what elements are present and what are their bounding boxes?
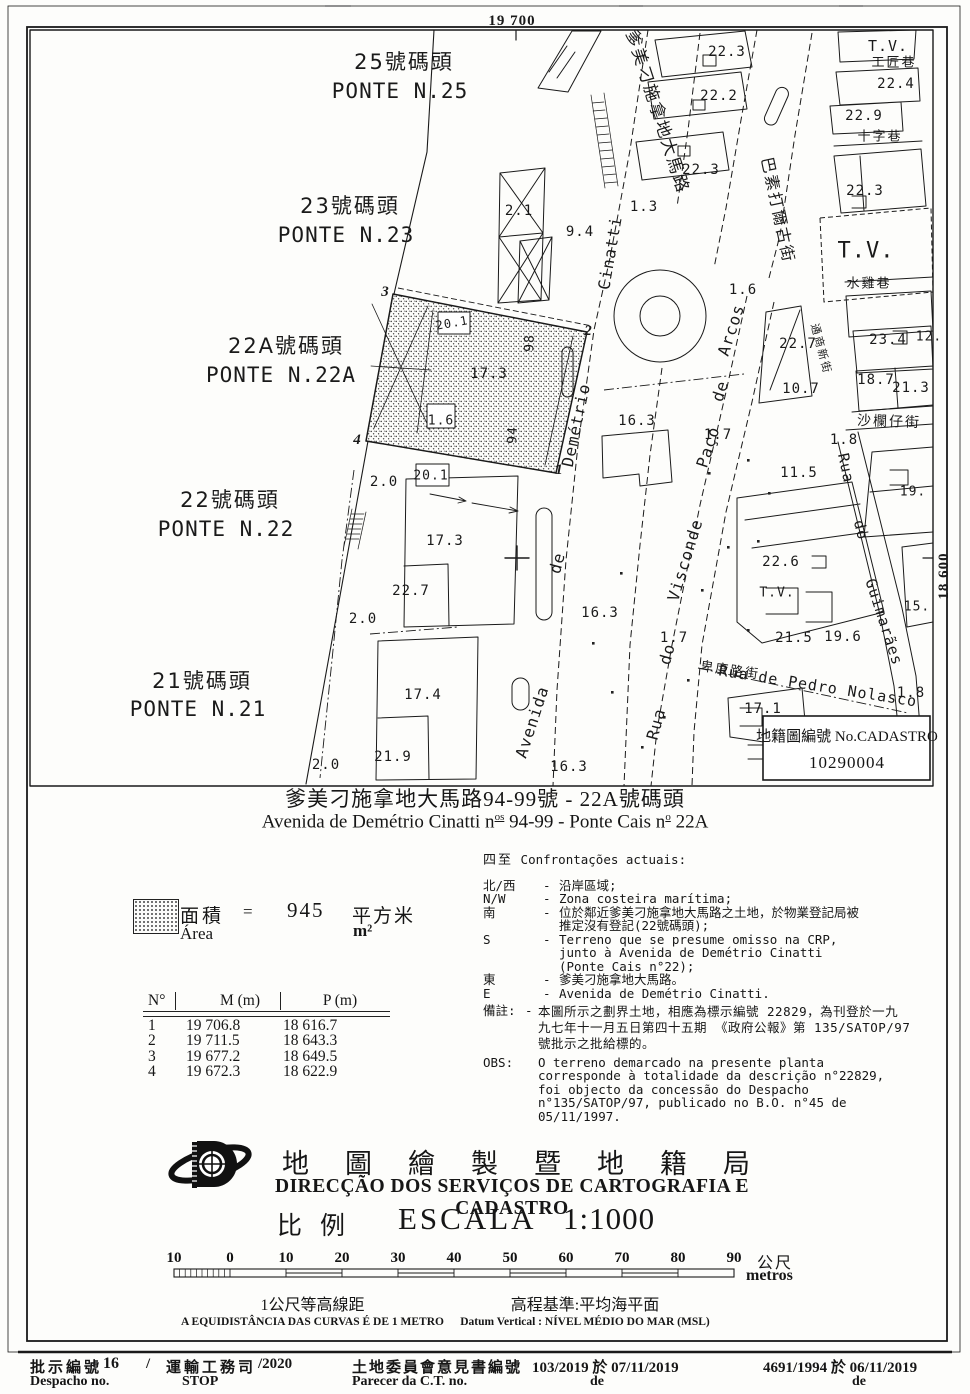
table-divider bbox=[280, 992, 281, 1010]
despacho-label-pt: Despacho no. bbox=[30, 1374, 109, 1390]
title-pt-part: 94-99 - Ponte Cais n bbox=[504, 811, 665, 832]
area-value: 945 bbox=[287, 898, 325, 923]
scale-tick-label: 10 bbox=[279, 1250, 294, 1266]
elevation-label: 1.3 bbox=[630, 199, 658, 215]
elevation-label: 1.6 bbox=[729, 282, 757, 298]
note-text: O terreno demarcado na presente planta c… bbox=[538, 1056, 923, 1124]
notes-block: 備註: - 本圖所示之劃界土地，相應為標示編號 22829，為刊登於一九 九七年… bbox=[483, 1004, 923, 1123]
street-label: de bbox=[545, 550, 569, 575]
cadastro-number: 10290004 bbox=[809, 753, 885, 772]
col-header: M (m) bbox=[200, 992, 280, 1010]
elevation-label: 19.6 bbox=[824, 629, 862, 645]
elevation-label: 15. bbox=[904, 600, 930, 615]
item-label: 東 bbox=[483, 973, 543, 987]
elevation-label: 16.3 bbox=[550, 759, 588, 775]
parecer-label-pt: Parecer da C.T. no. bbox=[352, 1374, 467, 1390]
elevation-label: 22.7 bbox=[779, 336, 817, 352]
scale-tick-label: 0 bbox=[226, 1250, 234, 1266]
elevation-label: 2.0 bbox=[349, 611, 377, 627]
title-pt-part: 22A bbox=[671, 811, 708, 832]
tv-label: T.V. bbox=[759, 586, 794, 601]
item-label: 南 bbox=[483, 906, 543, 933]
grid-coordinate-right: 18 600 bbox=[936, 552, 952, 599]
area-label-pt: Área bbox=[180, 924, 213, 944]
contour-note-zh: 1公尺等高線距 bbox=[160, 1291, 465, 1315]
item-dash: - bbox=[543, 892, 559, 906]
scale-tick-label: 30 bbox=[391, 1250, 406, 1266]
col-header: N° bbox=[148, 992, 165, 1010]
item-label: N/W bbox=[483, 892, 543, 906]
item-dash: - bbox=[543, 973, 559, 987]
street-label: 巴素打爾古街 bbox=[757, 155, 798, 265]
street-label: Rua bbox=[643, 706, 670, 742]
elevation-label: 20.1 bbox=[413, 469, 448, 484]
pier-label: PONTE N.22 bbox=[158, 517, 294, 541]
cadastro-box: 地籍圖編號 No.CADASTRO 10290004 bbox=[756, 716, 938, 780]
pier-label: 21號碼頭 bbox=[152, 669, 252, 693]
elevation-label: 22.3 bbox=[682, 162, 720, 178]
elevation-label: 22.4 bbox=[877, 76, 915, 92]
table-divider bbox=[175, 992, 176, 1010]
elevation-label: 1.6 bbox=[428, 414, 454, 429]
concessao-de: de bbox=[852, 1374, 866, 1390]
heading-pt: Confrontações actuais: bbox=[521, 852, 687, 867]
cell: 19 672.3 bbox=[186, 1063, 240, 1081]
coordinates-table: N° M (m) P (m) 119 706.818 616.7 219 711… bbox=[143, 992, 393, 1078]
parecer-value: 103/2019 於 07/11/2019 bbox=[532, 1356, 679, 1377]
despacho-number: 16 bbox=[103, 1355, 119, 1373]
datum-note-zh: 高程基準:平均海平面 bbox=[430, 1291, 740, 1315]
plan-title-zh: 爹美刁施拿地大馬路94-99號 - 22A號碼頭 bbox=[0, 783, 970, 813]
elevation-label: 17.1 bbox=[744, 701, 782, 717]
pier-label: 22A號碼頭 bbox=[228, 334, 344, 358]
street-label: Rua bbox=[834, 451, 858, 484]
item-text: Avenida de Demétrio Cinatti. bbox=[559, 987, 913, 1001]
street-label: de bbox=[708, 378, 733, 404]
elevation-label: 2.1 bbox=[505, 203, 533, 219]
despacho-slash: / bbox=[146, 1356, 150, 1373]
parecer-de: de bbox=[590, 1374, 604, 1390]
elevation-label: 22.2 bbox=[700, 88, 738, 104]
elevation-label: 22.7 bbox=[392, 583, 430, 599]
elevation-label: 16.3 bbox=[581, 605, 619, 621]
street-label: Visconde bbox=[663, 517, 706, 604]
item-text: 位於鄰近爹美刁施拿地大馬路之土地，於物業登記局被 推定沒有登記(22號碼頭); bbox=[559, 906, 913, 933]
scale-unit-pt: metros bbox=[746, 1267, 793, 1285]
item-dash: - bbox=[543, 933, 559, 974]
scale-tick-label: 80 bbox=[671, 1250, 686, 1266]
roundabout bbox=[614, 270, 706, 362]
area-legend-swatch bbox=[133, 899, 179, 934]
street-label: Cinatti bbox=[594, 215, 626, 292]
note-label: 備註: bbox=[483, 1004, 525, 1053]
coordinates-table-header: N° M (m) P (m) bbox=[143, 992, 393, 1009]
table-row: 219 711.518 643.3 bbox=[143, 1032, 393, 1047]
table-row: 119 706.818 616.7 bbox=[143, 1017, 393, 1032]
building-outlines bbox=[602, 430, 672, 486]
elevation-label: 18.7 bbox=[857, 372, 895, 388]
note-dash: - bbox=[525, 1004, 538, 1053]
tv-label: T.V. bbox=[868, 37, 908, 55]
grid-cross bbox=[505, 546, 529, 570]
elevation-label: 22.3 bbox=[708, 44, 746, 60]
street-label: 工匠巷 bbox=[871, 56, 916, 71]
building-outlines bbox=[737, 482, 884, 643]
elevation-label: 22.9 bbox=[845, 108, 883, 124]
note-dash bbox=[525, 1056, 538, 1124]
elevation-label: 21.9 bbox=[374, 749, 412, 765]
confrontations-items: 北/西-沿岸區域; N/W-Zona costeira marítima; 南-… bbox=[483, 879, 913, 1001]
street-label: Arcos bbox=[714, 302, 749, 358]
table-row: 319 677.218 649.5 bbox=[143, 1048, 393, 1063]
street-label: do bbox=[850, 518, 872, 542]
area-unit-pt: m² bbox=[353, 921, 372, 941]
scale-tick-label: 20 bbox=[335, 1250, 350, 1266]
elevation-label: 2.0 bbox=[370, 474, 398, 490]
grid-coordinate-top: 19 700 bbox=[488, 13, 535, 29]
street-label: 沙欄仔街 bbox=[857, 413, 922, 431]
title-pt-part: Avenida de Demétrio Cinatti n bbox=[262, 811, 495, 832]
elevation-label: 23.4 bbox=[869, 332, 907, 348]
note-text: 本圖所示之劃界土地，相應為標示編號 22829，為刊登於一九 九七年十一月五日第… bbox=[538, 1004, 923, 1053]
street-label: 水雞巷 bbox=[846, 277, 891, 292]
street-label: 十字巷 bbox=[857, 130, 902, 145]
boundary-point-number: 1 bbox=[555, 462, 563, 478]
item-label: S bbox=[483, 933, 543, 974]
confrontations-heading: 四至 Confrontações actuais: bbox=[483, 853, 913, 868]
tv-label: T.V. bbox=[838, 239, 895, 264]
note-label: OBS: bbox=[483, 1056, 525, 1124]
item-text: Terreno que se presume omisso na CRP, ju… bbox=[559, 933, 913, 974]
elevation-label: 17.3 bbox=[426, 533, 464, 549]
item-dash: - bbox=[543, 879, 559, 893]
table-row: 419 672.318 622.9 bbox=[143, 1063, 393, 1078]
cadastral-plan-page: 地籍圖編號 No.CADASTRO 10290004 19 70018 6002… bbox=[0, 0, 970, 1394]
scale-tick-label: 10 bbox=[167, 1250, 182, 1266]
item-dash: - bbox=[543, 987, 559, 1001]
datum-note-pt: Datum Vertical : NÍVEL MÉDIO DO MAR (MSL… bbox=[430, 1316, 740, 1328]
elevation-label: 17.3 bbox=[470, 366, 508, 382]
note-obs: OBS: O terreno demarcado na presente pla… bbox=[483, 1056, 923, 1124]
pier-label: 23號碼頭 bbox=[300, 194, 400, 218]
dept-abbr: STOP bbox=[182, 1374, 218, 1390]
elevation-label: 11.5 bbox=[780, 465, 818, 481]
note-zh: 備註: - 本圖所示之劃界土地，相應為標示編號 22829，為刊登於一九 九七年… bbox=[483, 1004, 923, 1053]
item-text: Zona costeira marítima; bbox=[559, 892, 913, 906]
scale-tick-label: 90 bbox=[727, 1250, 742, 1266]
title-pt-sup: os bbox=[495, 811, 505, 823]
elevation-label: 21.5 bbox=[775, 630, 813, 646]
pier-structure bbox=[498, 168, 545, 303]
elevation-label: 21.3 bbox=[892, 380, 930, 396]
item-text: 爹美刁施拿地大馬路。 bbox=[559, 973, 913, 987]
scale-tick-label: 60 bbox=[559, 1250, 574, 1266]
confrontations-block: 四至 Confrontações actuais: 北/西-沿岸區域; N/W-… bbox=[483, 853, 913, 1000]
agency-logo bbox=[168, 1140, 252, 1188]
elevation-label: 2.0 bbox=[312, 757, 340, 773]
elevation-label: 22.6 bbox=[762, 554, 800, 570]
pier-structure bbox=[518, 237, 552, 303]
cell: 18 622.9 bbox=[283, 1063, 337, 1081]
scale-value: 1:1000 bbox=[563, 1201, 655, 1237]
heading-zh: 四至 bbox=[483, 853, 513, 868]
pier-label: PONTE N.25 bbox=[332, 79, 468, 103]
elevation-label: 16.3 bbox=[618, 413, 656, 429]
col-header: P (m) bbox=[300, 992, 380, 1010]
despacho-year: /2020 bbox=[258, 1356, 292, 1373]
plan-title-pt: Avenida de Demétrio Cinatti nos 94-99 - … bbox=[0, 811, 970, 833]
item-label: E bbox=[483, 987, 543, 1001]
concessao-value: 4691/1994 於 06/11/2019 bbox=[763, 1356, 917, 1377]
street-label: Avenida bbox=[511, 684, 552, 761]
door-number: 98 bbox=[522, 334, 538, 352]
elevation-label: 1.8 bbox=[897, 685, 925, 701]
boundary-point-number: 2 bbox=[583, 323, 592, 339]
elevation-label: 19. bbox=[900, 485, 926, 500]
demarcated-plot bbox=[366, 294, 587, 473]
elevation-label: 10.7 bbox=[782, 381, 820, 397]
elevation-label: 9.4 bbox=[566, 224, 594, 240]
contour-note-pt: A EQUIDISTÂNCIA DAS CURVAS É DE 1 METRO bbox=[160, 1316, 465, 1328]
item-label: 北/西 bbox=[483, 879, 543, 893]
cell: 4 bbox=[148, 1063, 156, 1081]
pier-label: PONTE N.22A bbox=[206, 363, 356, 387]
scale-tick-label: 70 bbox=[615, 1250, 630, 1266]
cadastro-label: 地籍圖編號 No.CADASTRO bbox=[756, 728, 938, 745]
area-equals: = bbox=[243, 902, 253, 922]
elevation-label: 1.7 bbox=[660, 630, 688, 646]
quay-steps bbox=[591, 93, 618, 188]
boundary-point-number: 4 bbox=[352, 432, 361, 448]
pier-label: PONTE N.23 bbox=[278, 223, 414, 247]
elevation-label: 1.8 bbox=[830, 432, 858, 448]
scale-tick-label: 50 bbox=[503, 1250, 518, 1266]
scale-tick-label: 40 bbox=[447, 1250, 462, 1266]
boundary-point-number: 3 bbox=[380, 284, 389, 300]
item-dash: - bbox=[543, 906, 559, 933]
pier-label: 25號碼頭 bbox=[354, 50, 454, 74]
elevation-label: 1.7 bbox=[704, 427, 732, 443]
scale-bar bbox=[174, 1269, 734, 1277]
scale-label-pt: ESCALA bbox=[398, 1201, 537, 1237]
elevation-label: 17.4 bbox=[404, 687, 442, 703]
pier-structure bbox=[538, 31, 601, 92]
elevation-label: 22.3 bbox=[846, 183, 884, 199]
street-label: Guimarães bbox=[861, 576, 906, 667]
pier-label: 22號碼頭 bbox=[180, 488, 280, 512]
elevation-label: 12. bbox=[916, 330, 942, 345]
item-text: 沿岸區域; bbox=[559, 879, 913, 893]
traffic-island bbox=[762, 85, 790, 127]
scale-label-zh: 比例 bbox=[277, 1206, 363, 1242]
scale-bar-ticks: 100102030405060708090 bbox=[167, 1250, 742, 1266]
plot-arrows bbox=[430, 494, 518, 513]
door-number: 94 bbox=[505, 426, 521, 444]
pier-label: PONTE N.21 bbox=[130, 697, 266, 721]
